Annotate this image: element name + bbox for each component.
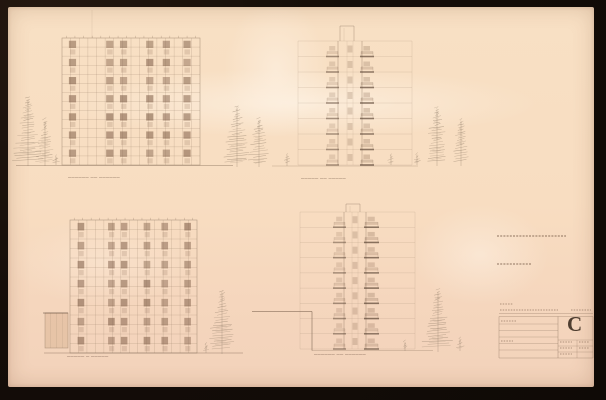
conifer-tree: [248, 117, 269, 167]
titleblock-revision-letter: C: [567, 313, 582, 335]
conifer-tree: [453, 118, 468, 166]
conifer-tree: [53, 154, 60, 165]
conifer-tree: [35, 118, 53, 166]
elevation-upper-right: [298, 26, 412, 165]
elevation-upper-left: [62, 36, 200, 165]
elevation-lower-right: [300, 204, 415, 349]
caption-upper-right-elevation: ───── ── ─────: [301, 176, 346, 181]
conifer-tree: [209, 290, 234, 354]
conifer-tree: [414, 152, 420, 165]
conifer-tree: [203, 342, 209, 353]
conifer-tree: [388, 154, 394, 165]
conifer-tree: [422, 289, 453, 352]
annotation-text-marks: [497, 236, 566, 264]
annex-block: [43, 313, 68, 348]
elevations-drawing: [0, 0, 606, 400]
conifer-tree: [403, 340, 407, 351]
caption-lower-right-elevation: ────── ── ──────: [314, 352, 366, 357]
conifer-tree: [284, 153, 290, 166]
conifer-tree: [427, 107, 445, 166]
conifer-tree: [224, 106, 249, 167]
elevation-lower-left: [70, 218, 197, 353]
caption-lower-left-elevation: ───── ─ ─────: [67, 354, 108, 359]
archival-drawing-photo: ────── ── ────── ───── ── ───── ───── ─ …: [0, 0, 606, 400]
conifer-tree: [12, 97, 43, 166]
conifer-tree: [456, 337, 464, 351]
caption-upper-left-elevation: ────── ── ──────: [68, 175, 120, 180]
